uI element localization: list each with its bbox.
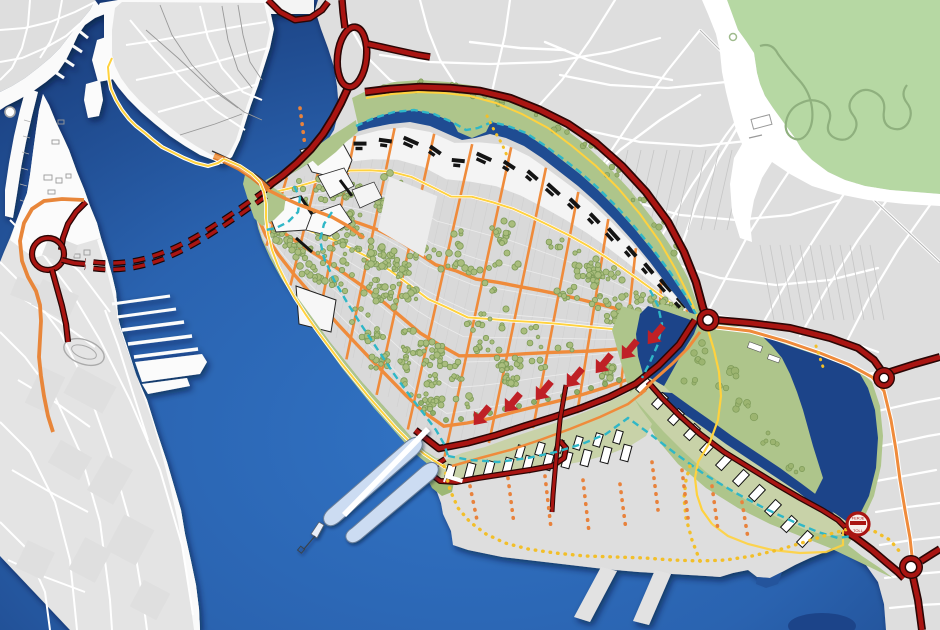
- svg-text:TOLL: TOLL: [853, 528, 864, 533]
- svg-text:FERJE: FERJE: [852, 516, 865, 521]
